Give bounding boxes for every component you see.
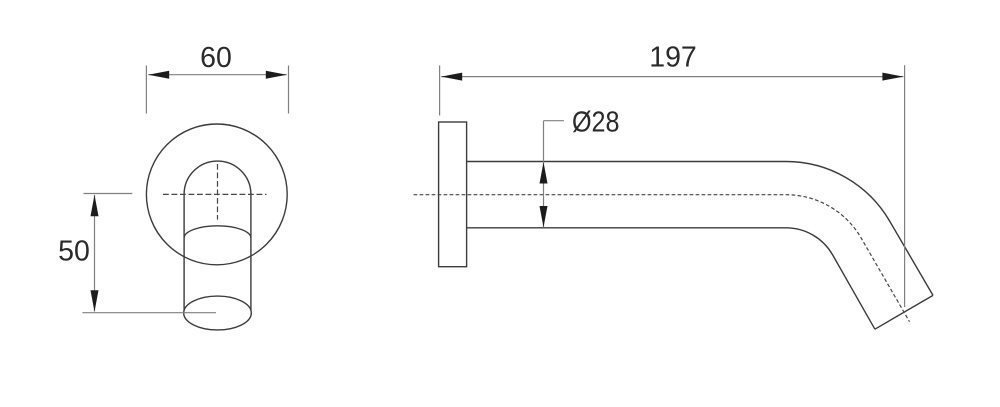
svg-text:Ø28: Ø28 bbox=[572, 107, 620, 139]
svg-text:50: 50 bbox=[58, 236, 90, 268]
svg-text:60: 60 bbox=[200, 42, 232, 74]
svg-text:197: 197 bbox=[649, 41, 697, 73]
